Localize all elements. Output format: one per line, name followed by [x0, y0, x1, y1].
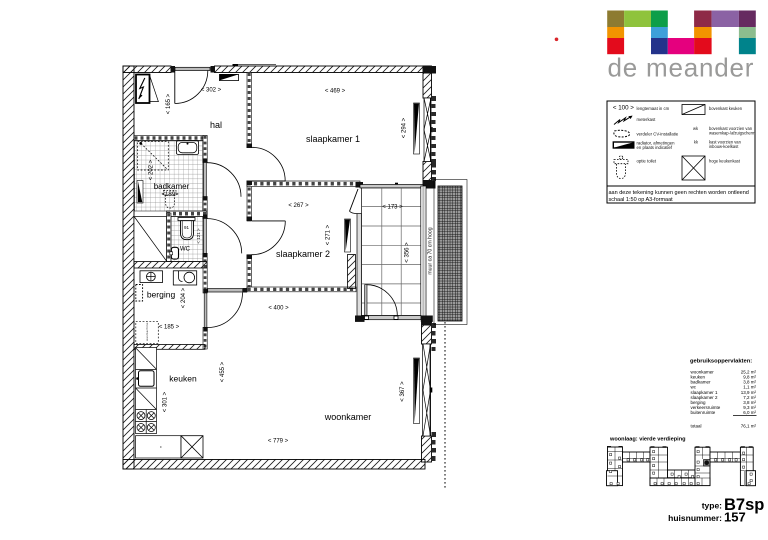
svg-text:< 455 >: < 455 >: [220, 361, 226, 382]
svg-text:< 294 >: < 294 >: [402, 117, 408, 138]
svg-text:157: 157: [724, 510, 746, 525]
svg-text:inbouw-koelkast: inbouw-koelkast: [709, 144, 739, 149]
svg-text:bovenkast keuken: bovenkast keuken: [709, 106, 743, 111]
svg-text:< 173 >: < 173 >: [382, 205, 403, 211]
svg-text:< 271 >: < 271 >: [326, 224, 332, 245]
svg-text:schaal 1:50 op A3-formaat: schaal 1:50 op A3-formaat: [609, 197, 674, 203]
svg-text:type:: type:: [702, 501, 722, 511]
svg-text:aan deze tekening kunnen geen: aan deze tekening kunnen geen rechten wo…: [609, 190, 749, 196]
svg-text:muur ca 70 cm hoog: muur ca 70 cm hoog: [428, 227, 434, 274]
svg-text:totaal: totaal: [691, 424, 702, 429]
svg-text:< 267 >: < 267 >: [288, 203, 309, 209]
svg-text:< 185 >: < 185 >: [159, 325, 180, 331]
svg-text:WC: WC: [180, 247, 191, 253]
svg-text:slaapkamer 2: slaapkamer 2: [276, 249, 330, 259]
svg-text:< 204 >: < 204 >: [181, 287, 187, 308]
svg-text:verdeler CV-installatie: verdeler CV-installatie: [637, 131, 679, 136]
svg-text:slaapkamer 1: slaapkamer 1: [306, 134, 360, 144]
svg-text:woonkamer: woonkamer: [324, 412, 372, 422]
svg-text:< 121 >: < 121 >: [196, 228, 201, 244]
svg-text:<189>: <189>: [161, 192, 179, 198]
svg-text:woonlaag: vierde verdieping: woonlaag: vierde verdieping: [609, 437, 686, 443]
svg-text:< 356 >: < 356 >: [405, 242, 411, 263]
svg-text:< 367 >: < 367 >: [400, 381, 406, 402]
svg-text:berging: berging: [147, 290, 176, 300]
svg-text:badkamer: badkamer: [154, 182, 190, 191]
svg-text:wasemkap-/afzuigscherm: wasemkap-/afzuigscherm: [709, 131, 756, 136]
svg-text:hal: hal: [210, 120, 222, 130]
svg-text:wasmachine: wasmachine: [145, 322, 149, 341]
svg-text:wc: wc: [691, 385, 697, 390]
svg-text:< 469 >: < 469 >: [325, 89, 346, 95]
svg-text:en plaats indicatief: en plaats indicatief: [637, 145, 673, 150]
svg-text:lengtemaat in cm: lengtemaat in cm: [637, 106, 670, 111]
svg-text:optie toilet: optie toilet: [637, 158, 657, 163]
svg-text:< 779 >: < 779 >: [268, 439, 289, 445]
svg-text:< 400 >: < 400 >: [268, 306, 289, 312]
svg-text:< 202 >: < 202 >: [149, 159, 155, 180]
svg-text:6,0 m²: 6,0 m²: [743, 410, 756, 415]
svg-text:76,1 m²: 76,1 m²: [741, 424, 757, 429]
svg-text:< 165 >: < 165 >: [166, 93, 172, 114]
svg-text:< 301 >: < 301 >: [163, 391, 169, 412]
svg-text:< 100 >: < 100 >: [613, 105, 634, 112]
svg-text:1,1 m²: 1,1 m²: [743, 385, 756, 390]
svg-text:keuken: keuken: [169, 374, 197, 384]
svg-text:< 302 >: < 302 >: [201, 88, 222, 94]
svg-text:gebruiksoppervlakten:: gebruiksoppervlakten:: [690, 359, 752, 365]
svg-text:buitenruimte: buitenruimte: [691, 410, 716, 415]
svg-text:hoge keukenkast: hoge keukenkast: [709, 158, 741, 163]
svg-text:91: 91: [184, 225, 190, 230]
svg-text:huisnummer:: huisnummer:: [668, 513, 722, 523]
svg-text:meterkast: meterkast: [637, 117, 657, 122]
svg-text:de meander: de meander: [608, 53, 755, 83]
